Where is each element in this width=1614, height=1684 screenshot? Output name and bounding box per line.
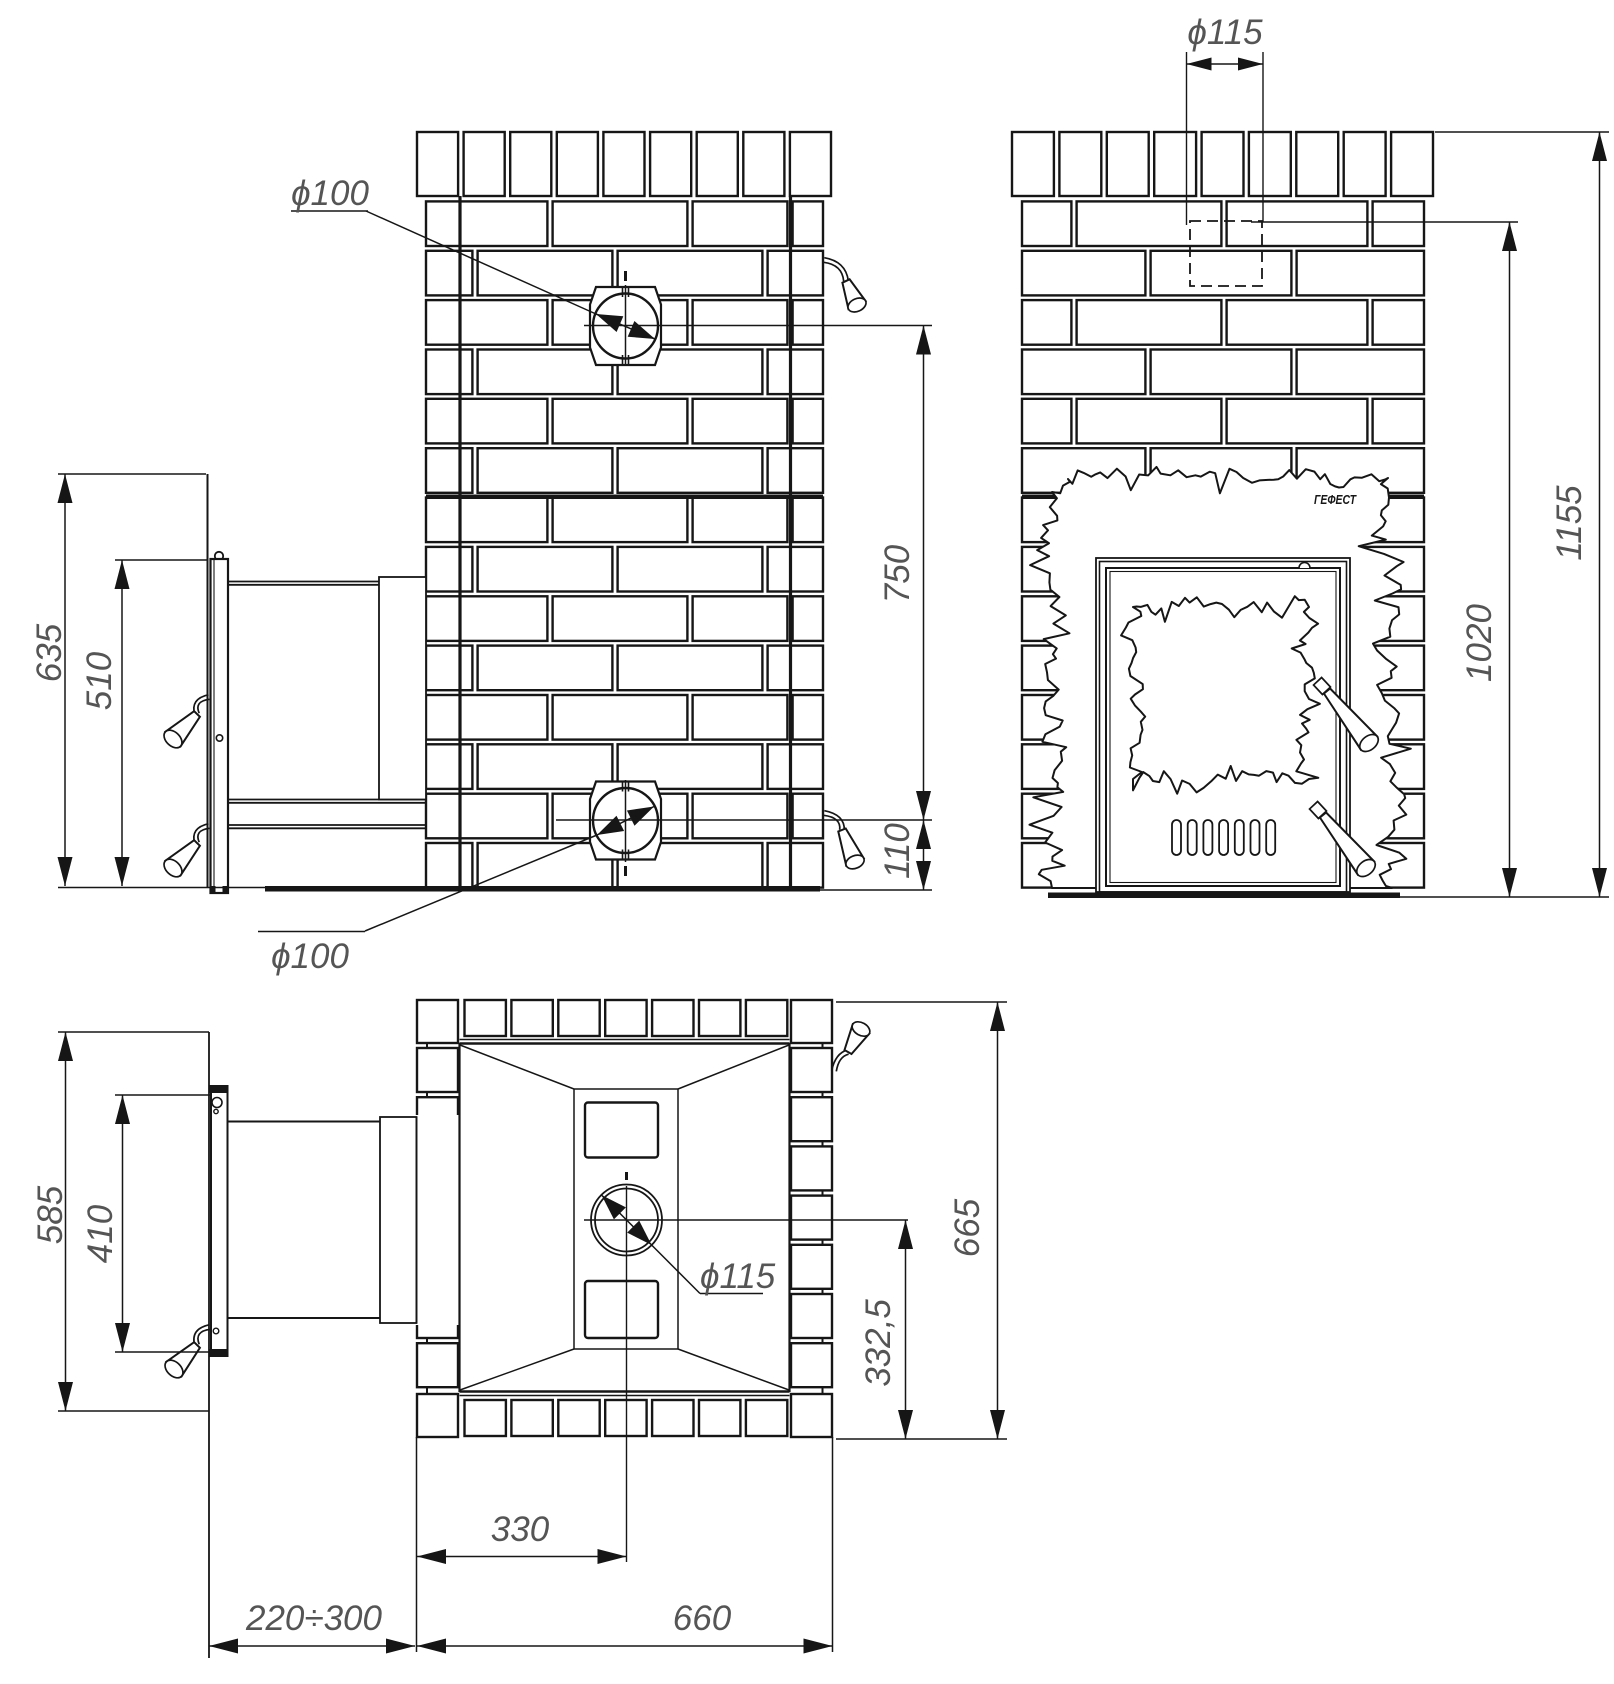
svg-text:665: 665 — [948, 1198, 987, 1257]
svg-text:410: 410 — [81, 1204, 120, 1263]
svg-text:ϕ115: ϕ115 — [1187, 13, 1263, 52]
svg-text:585: 585 — [31, 1185, 70, 1244]
svg-text:ϕ100: ϕ100 — [271, 937, 349, 976]
svg-text:ГЕФЕСТ: ГЕФЕСТ — [1314, 492, 1357, 507]
svg-text:1020: 1020 — [1460, 604, 1499, 682]
svg-text:660: 660 — [673, 1599, 732, 1638]
svg-text:110: 110 — [878, 823, 917, 879]
svg-text:220÷300: 220÷300 — [245, 1599, 383, 1638]
svg-text:635: 635 — [30, 623, 69, 682]
svg-text:750: 750 — [878, 544, 917, 603]
svg-text:332,5: 332,5 — [859, 1299, 898, 1387]
svg-text:ϕ115: ϕ115 — [700, 1257, 776, 1296]
svg-text:330: 330 — [491, 1510, 550, 1549]
svg-text:1155: 1155 — [1550, 485, 1589, 561]
svg-text:510: 510 — [80, 651, 119, 710]
svg-text:ϕ100: ϕ100 — [291, 174, 369, 213]
